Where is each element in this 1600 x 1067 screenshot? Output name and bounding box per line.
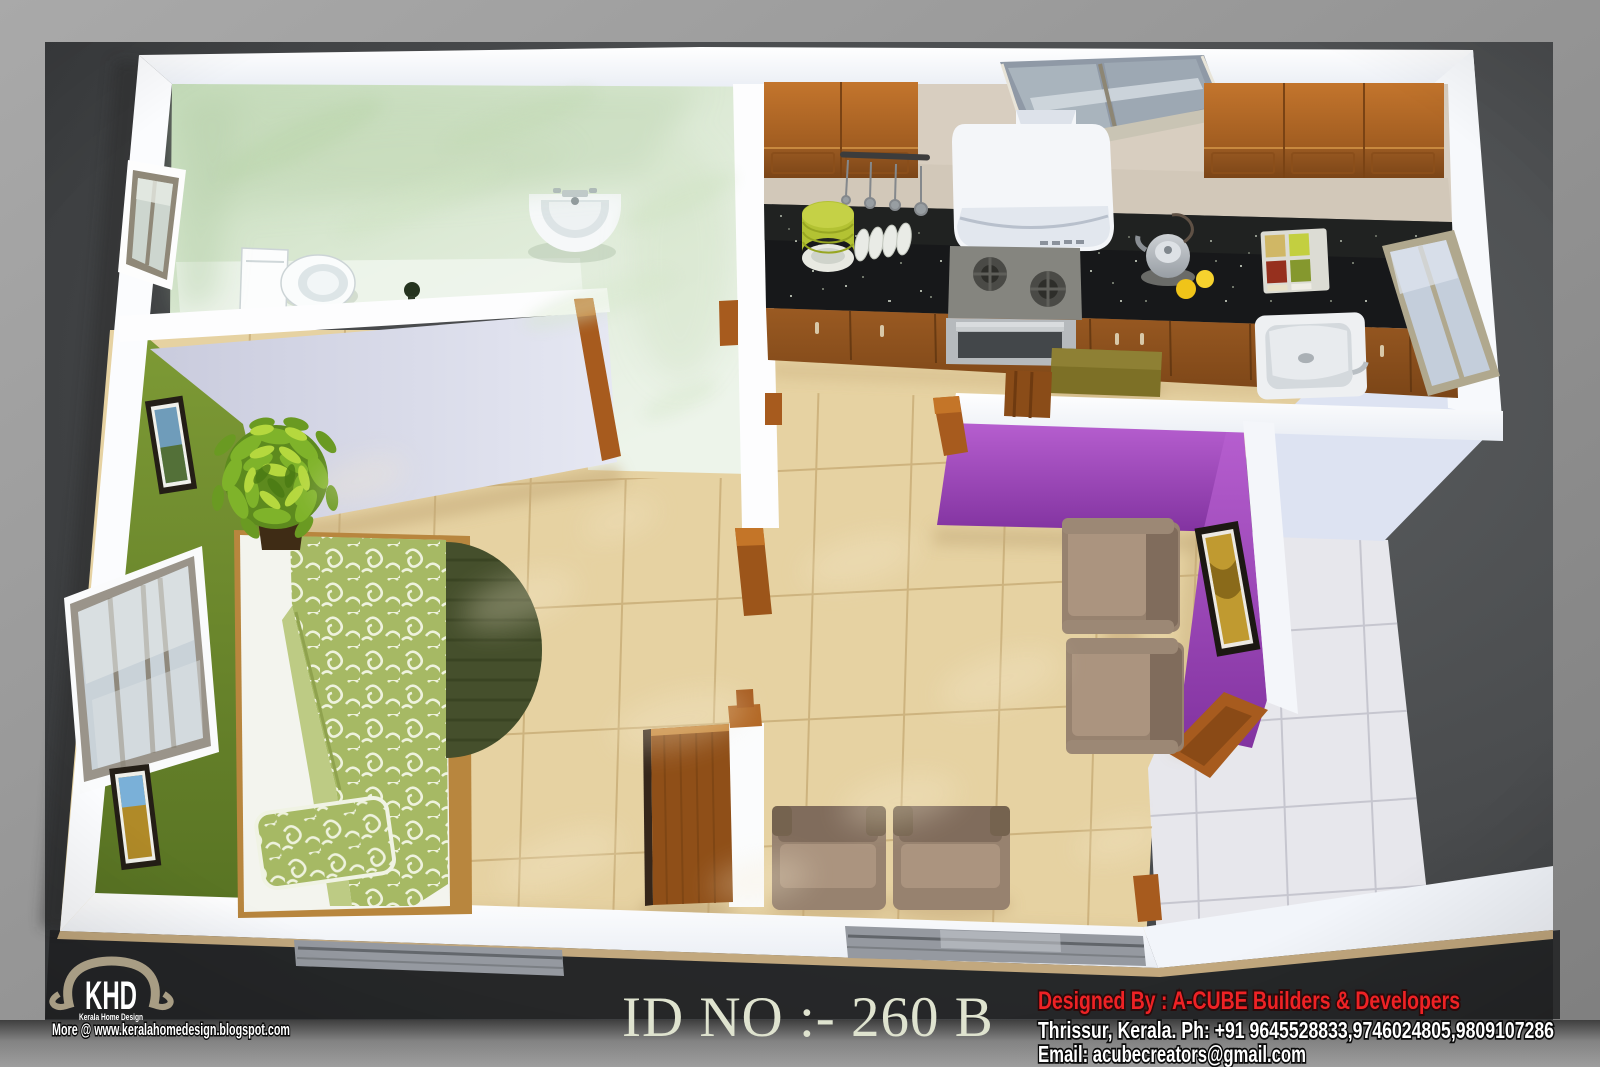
svg-text:More @ www.keralahomedesign.bl: More @ www.keralahomedesign.blogspot.com [52,1020,290,1039]
svg-text:Designed By : A-CUBE Builders: Designed By : A-CUBE Builders & Develope… [1038,987,1460,1015]
svg-text:ID NO :- 260 B: ID NO :- 260 B [622,986,994,1049]
svg-text:Email: acubecreators@gmail.com: Email: acubecreators@gmail.com [1038,1041,1306,1067]
svg-text:Thrissur, Kerala. Ph: +91 964: Thrissur, Kerala. Ph: +91 9645528833,974… [1038,1017,1554,1043]
